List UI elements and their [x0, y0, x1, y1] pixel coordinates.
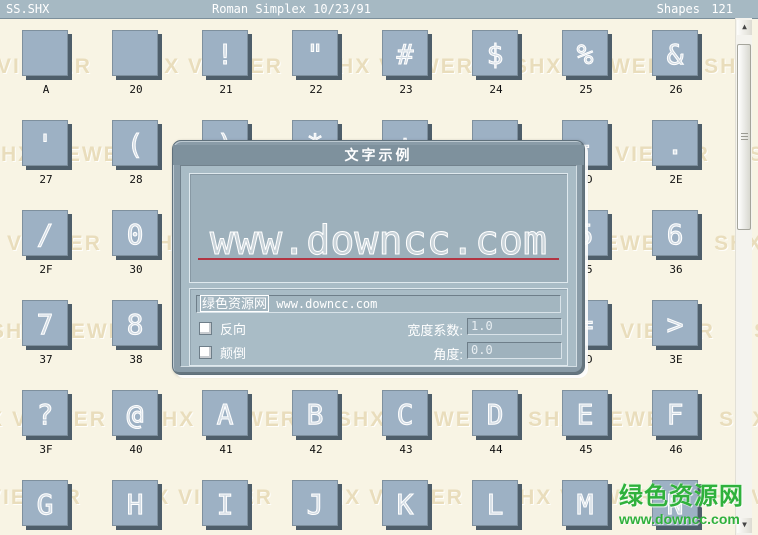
cell-glyph: 0	[113, 211, 157, 255]
cell-glyph: @	[113, 391, 157, 435]
cell-label: 26	[631, 83, 721, 96]
cell-label: 43	[361, 443, 451, 456]
cell-label: 44	[451, 443, 541, 456]
cell-label: 20	[91, 83, 181, 96]
glyph-cell[interactable]: 7 37	[22, 300, 68, 346]
cell-glyph: %	[563, 31, 607, 75]
angle-input[interactable]: 0.0	[467, 342, 562, 359]
upside-down-checkbox-row[interactable]: 颠倒	[199, 343, 246, 362]
cell-label: 23	[361, 83, 451, 96]
glyph-cell[interactable]: F 46	[652, 390, 698, 436]
sample-text-rest: www.downcc.com	[269, 297, 377, 311]
glyph-cell[interactable]: A 41	[202, 390, 248, 436]
glyph-cell[interactable]: J	[292, 480, 338, 526]
cell-label: 25	[541, 83, 631, 96]
cell-label: 28	[91, 173, 181, 186]
glyph-cell[interactable]: 6 36	[652, 210, 698, 256]
cell-glyph: 7	[23, 301, 67, 345]
cell-label: 41	[181, 443, 271, 456]
glyph-cell[interactable]: . 2E	[652, 120, 698, 166]
glyph-cell[interactable]: ! 21	[202, 30, 248, 76]
glyph-cell[interactable]: / 2F	[22, 210, 68, 256]
glyph-cell[interactable]: ( 28	[112, 120, 158, 166]
cell-glyph: L	[473, 481, 517, 525]
reverse-checkbox-label: 反向	[220, 319, 246, 338]
cell-glyph: >	[653, 301, 697, 345]
glyph-cell[interactable]: > 3E	[652, 300, 698, 346]
shapes-label: Shapes	[657, 0, 700, 18]
glyph-cell[interactable]: E 45	[562, 390, 608, 436]
glyph-cell[interactable]: H	[112, 480, 158, 526]
width-factor-label: 宽度系数:	[353, 320, 463, 339]
cell-glyph: 6	[653, 211, 697, 255]
cell-glyph: D	[473, 391, 517, 435]
cell-glyph: M	[563, 481, 607, 525]
cell-glyph: K	[383, 481, 427, 525]
scroll-down-icon[interactable]: ▼	[737, 518, 752, 533]
glyph-cell[interactable]: M	[562, 480, 608, 526]
glyph-cell[interactable]: % 25	[562, 30, 608, 76]
upside-down-checkbox-label: 颠倒	[220, 343, 246, 362]
cell-glyph: N	[653, 481, 697, 525]
cell-label: 3F	[1, 443, 91, 456]
cell-glyph: A	[203, 391, 247, 435]
checkbox-icon[interactable]	[199, 346, 212, 359]
cell-glyph: $	[473, 31, 517, 75]
cell-glyph: "	[293, 31, 337, 75]
cell-label: 21	[181, 83, 271, 96]
cell-glyph: E	[563, 391, 607, 435]
cell-label: 30	[91, 263, 181, 276]
angle-label: 角度:	[353, 344, 463, 363]
cell-glyph: H	[113, 481, 157, 525]
glyph-cell[interactable]: 20	[112, 30, 158, 76]
glyph-cell[interactable]: @ 40	[112, 390, 158, 436]
glyph-cell[interactable]: D 44	[472, 390, 518, 436]
glyph-cell[interactable]: I	[202, 480, 248, 526]
cell-label: 27	[1, 173, 91, 186]
cell-glyph: J	[293, 481, 337, 525]
file-name: SS.SHX	[6, 0, 49, 18]
cell-glyph: /	[23, 211, 67, 255]
glyph-cell[interactable]: G	[22, 480, 68, 526]
glyph-cell[interactable]: 8 38	[112, 300, 158, 346]
dialog-body: www.downcc.com 绿色资源网 www.downcc.com 反向 颠…	[180, 165, 577, 367]
text-sample-dialog: 文字示例 www.downcc.com 绿色资源网 www.downcc.com…	[172, 140, 585, 375]
scroll-up-icon[interactable]: ▲	[737, 20, 752, 35]
reverse-checkbox-row[interactable]: 反向	[199, 319, 246, 338]
status-bar: SS.SHX Roman Simplex 10/23/91 Shapes 121	[0, 0, 758, 18]
cell-glyph: '	[23, 121, 67, 165]
shape-count: 121	[711, 0, 733, 18]
thumb-grip-icon	[741, 133, 748, 141]
cell-glyph: 8	[113, 301, 157, 345]
cell-label: 37	[1, 353, 91, 366]
cell-label: 45	[541, 443, 631, 456]
cell-glyph: C	[383, 391, 427, 435]
options-group: 绿色资源网 www.downcc.com 反向 颠倒 宽度系数: 1.0 角度:…	[189, 288, 568, 366]
cell-glyph: (	[113, 121, 157, 165]
cell-label: A	[1, 83, 91, 96]
cell-label: 36	[631, 263, 721, 276]
cell-glyph: .	[653, 121, 697, 165]
glyph-cell[interactable]: K	[382, 480, 428, 526]
width-factor-input[interactable]: 1.0	[467, 318, 562, 335]
text-preview-area: www.downcc.com	[189, 173, 568, 283]
cell-label: 38	[91, 353, 181, 366]
glyph-cell[interactable]: # 23	[382, 30, 428, 76]
dialog-title[interactable]: 文字示例	[173, 145, 584, 165]
cell-glyph: #	[383, 31, 427, 75]
baseline-rule	[198, 258, 559, 260]
cell-label: 2F	[1, 263, 91, 276]
cell-glyph: G	[23, 481, 67, 525]
glyph-cell[interactable]: N	[652, 480, 698, 526]
glyph-cell[interactable]: & 26	[652, 30, 698, 76]
cell-label: 40	[91, 443, 181, 456]
glyph-cell[interactable]: 0 30	[112, 210, 158, 256]
cell-label: 22	[271, 83, 361, 96]
cell-glyph	[113, 31, 157, 75]
selected-text: 绿色资源网	[200, 295, 269, 312]
cell-glyph: &	[653, 31, 697, 75]
cell-glyph: !	[203, 31, 247, 75]
glyph-cell[interactable]: C 43	[382, 390, 428, 436]
cell-glyph: ?	[23, 391, 67, 435]
glyph-cell[interactable]: B 42	[292, 390, 338, 436]
cell-label: 2E	[631, 173, 721, 186]
cell-glyph: B	[293, 391, 337, 435]
glyph-cell[interactable]: $ 24	[472, 30, 518, 76]
sample-text-input[interactable]: 绿色资源网 www.downcc.com	[196, 295, 561, 313]
cell-label: 3E	[631, 353, 721, 366]
cell-label: 46	[631, 443, 721, 456]
shx-viewer-window: SHX VIEWER SHX VIEWER SHX VIEWER SHX VIE…	[0, 0, 758, 535]
preview-text: www.downcc.com	[190, 221, 567, 261]
glyph-cell[interactable]: ? 3F	[22, 390, 68, 436]
scrollbar-thumb[interactable]	[737, 44, 751, 230]
cell-label: 24	[451, 83, 541, 96]
glyph-cell[interactable]: " 22	[292, 30, 338, 76]
cell-label: 42	[271, 443, 361, 456]
cell-glyph: F	[653, 391, 697, 435]
glyph-cell[interactable]: A	[22, 30, 68, 76]
vertical-scrollbar[interactable]: ▲ ▼	[735, 18, 752, 535]
font-title: Roman Simplex 10/23/91	[212, 0, 371, 18]
cell-glyph	[23, 31, 67, 75]
cell-glyph: I	[203, 481, 247, 525]
glyph-cell[interactable]: L	[472, 480, 518, 526]
checkbox-icon[interactable]	[199, 322, 212, 335]
glyph-cell[interactable]: ' 27	[22, 120, 68, 166]
